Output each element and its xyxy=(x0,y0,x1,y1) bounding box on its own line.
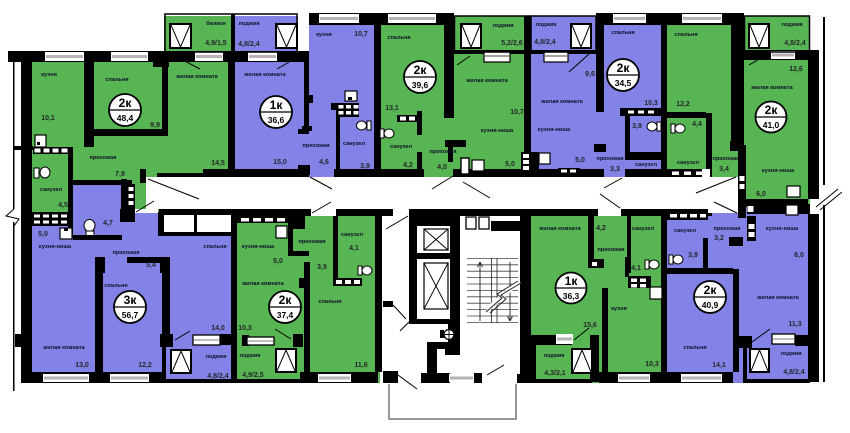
svg-text:жилая комната: жилая комната xyxy=(756,295,799,301)
svg-text:14,1: 14,1 xyxy=(712,362,726,369)
svg-text:13,0: 13,0 xyxy=(75,362,89,369)
svg-text:36,6: 36,6 xyxy=(268,115,285,125)
svg-text:спальня: спальня xyxy=(683,345,706,351)
svg-text:жилая комната: жилая комната xyxy=(241,281,284,287)
svg-text:спальня: спальня xyxy=(387,35,410,41)
svg-text:прихожая: прихожая xyxy=(299,239,326,245)
svg-text:6,0: 6,0 xyxy=(756,191,766,198)
svg-text:лоджия: лоджия xyxy=(543,353,564,359)
svg-text:лоджия: лоджия xyxy=(238,21,259,27)
svg-text:балкон: балкон xyxy=(206,20,226,27)
svg-text:1к: 1к xyxy=(270,98,284,112)
svg-text:40,9: 40,9 xyxy=(702,300,719,310)
svg-text:3к: 3к xyxy=(124,293,138,307)
svg-text:спальня: спальня xyxy=(104,283,127,289)
svg-text:4,4: 4,4 xyxy=(692,121,702,128)
svg-text:кухня: кухня xyxy=(316,32,332,38)
svg-text:кухня: кухня xyxy=(611,306,627,312)
svg-text:56,7: 56,7 xyxy=(122,310,139,320)
svg-text:4,0: 4,0 xyxy=(437,164,447,171)
svg-text:5,2/2,6: 5,2/2,6 xyxy=(501,40,523,47)
svg-text:прихожая: прихожая xyxy=(713,156,740,162)
svg-text:лоджия: лоджия xyxy=(492,23,513,29)
svg-text:кухня-ниша: кухня-ниша xyxy=(762,168,795,174)
svg-text:9,6: 9,6 xyxy=(585,71,595,78)
svg-text:4,8/2,4: 4,8/2,4 xyxy=(784,40,806,47)
svg-text:2к: 2к xyxy=(704,283,718,297)
svg-text:4,5: 4,5 xyxy=(58,202,68,209)
svg-text:спальня: спальня xyxy=(105,77,128,83)
svg-text:5,0: 5,0 xyxy=(38,231,48,238)
svg-text:кухня-ниша: кухня-ниша xyxy=(481,128,514,134)
svg-text:15,6: 15,6 xyxy=(583,322,597,329)
svg-text:4,8/2,4: 4,8/2,4 xyxy=(783,369,805,376)
svg-text:15,0: 15,0 xyxy=(273,159,287,166)
svg-text:10,1: 10,1 xyxy=(41,115,55,122)
svg-text:спальня: спальня xyxy=(203,244,226,250)
svg-text:спальня: спальня xyxy=(674,32,697,38)
svg-text:6,0: 6,0 xyxy=(794,252,804,259)
svg-text:жилая комната: жилая комната xyxy=(175,74,218,80)
svg-text:10,3: 10,3 xyxy=(238,325,252,332)
svg-text:7,9: 7,9 xyxy=(115,171,125,178)
svg-text:санузел: санузел xyxy=(635,162,658,168)
svg-text:34,5: 34,5 xyxy=(615,78,632,88)
svg-text:4,7: 4,7 xyxy=(103,220,113,227)
svg-text:11,3: 11,3 xyxy=(788,321,801,328)
svg-text:2к: 2к xyxy=(119,96,133,110)
svg-text:4,3/2,1: 4,3/2,1 xyxy=(544,370,566,377)
svg-text:прихожая: прихожая xyxy=(90,155,117,161)
svg-text:3,9: 3,9 xyxy=(317,264,327,271)
svg-text:прихожая: прихожая xyxy=(113,250,140,256)
svg-text:2к: 2к xyxy=(414,63,428,77)
svg-text:14,0: 14,0 xyxy=(211,325,225,332)
svg-text:лоджия: лоджия xyxy=(535,22,556,28)
svg-text:3,4: 3,4 xyxy=(719,166,729,173)
svg-text:3,3: 3,3 xyxy=(610,166,620,173)
svg-text:12,2: 12,2 xyxy=(138,362,152,369)
svg-text:11,6: 11,6 xyxy=(354,362,367,369)
svg-text:4,2: 4,2 xyxy=(596,225,606,232)
svg-text:жилая комната: жилая комната xyxy=(538,226,581,232)
svg-text:жилая комната: жилая комната xyxy=(465,78,508,84)
svg-text:4,6: 4,6 xyxy=(319,159,329,166)
svg-text:санузел: санузел xyxy=(343,141,366,147)
svg-text:2к: 2к xyxy=(617,61,631,75)
svg-text:4,8/2,4: 4,8/2,4 xyxy=(534,39,556,46)
svg-text:37,4: 37,4 xyxy=(277,310,294,320)
svg-text:жилая комната: жилая комната xyxy=(540,99,583,105)
svg-text:3,9: 3,9 xyxy=(632,123,642,130)
svg-text:12,2: 12,2 xyxy=(676,101,690,108)
svg-text:прихожая: прихожая xyxy=(430,149,457,155)
svg-text:прихожая: прихожая xyxy=(714,226,741,232)
svg-text:лоджия: лоджия xyxy=(781,22,802,28)
svg-text:кухня-ниша: кухня-ниша xyxy=(242,244,275,250)
svg-text:4,1: 4,1 xyxy=(631,265,641,272)
svg-text:жилая комната: жилая комната xyxy=(42,345,85,351)
svg-text:5,0: 5,0 xyxy=(273,258,283,265)
svg-text:спальня: спальня xyxy=(318,299,341,305)
svg-text:4,2: 4,2 xyxy=(403,162,413,169)
svg-text:5,0: 5,0 xyxy=(575,157,585,164)
svg-text:прихожая: прихожая xyxy=(598,247,625,253)
svg-text:4,8/2,4: 4,8/2,4 xyxy=(207,373,229,380)
svg-text:5,0: 5,0 xyxy=(505,161,515,168)
svg-text:жилая комната: жилая комната xyxy=(750,85,793,91)
svg-text:кухня: кухня xyxy=(41,72,57,78)
svg-text:9,9: 9,9 xyxy=(150,122,160,129)
svg-text:лоджия: лоджия xyxy=(239,353,260,359)
svg-text:48,4: 48,4 xyxy=(117,113,134,123)
svg-text:2к: 2к xyxy=(765,103,779,117)
svg-text:14,5: 14,5 xyxy=(211,160,225,167)
svg-text:жилая комната: жилая комната xyxy=(243,72,286,78)
svg-text:2к: 2к xyxy=(279,293,293,307)
svg-text:санузел: санузел xyxy=(632,226,655,232)
svg-text:4,1: 4,1 xyxy=(349,245,359,252)
svg-text:санузел: санузел xyxy=(390,144,413,150)
svg-text:4,9/2,5: 4,9/2,5 xyxy=(242,372,264,379)
svg-text:3,9: 3,9 xyxy=(688,252,698,259)
svg-text:4,8/2,4: 4,8/2,4 xyxy=(238,41,260,48)
svg-text:кухня-ниша: кухня-ниша xyxy=(766,226,799,232)
svg-text:39,6: 39,6 xyxy=(412,80,429,90)
svg-text:13,1: 13,1 xyxy=(385,105,399,112)
svg-text:10,3: 10,3 xyxy=(645,361,659,368)
svg-text:3,2: 3,2 xyxy=(714,235,724,242)
svg-text:12,6: 12,6 xyxy=(789,66,803,73)
svg-text:прихожая: прихожая xyxy=(597,156,624,162)
svg-text:3,9: 3,9 xyxy=(360,163,370,170)
svg-text:лоджия: лоджия xyxy=(205,354,226,360)
svg-text:санузел: санузел xyxy=(677,160,700,166)
svg-text:кухня-ниша: кухня-ниша xyxy=(538,127,571,133)
svg-text:1к: 1к xyxy=(565,274,579,288)
svg-text:кухня-ниша: кухня-ниша xyxy=(39,244,72,250)
svg-text:10,3: 10,3 xyxy=(644,100,658,107)
svg-text:прихожая: прихожая xyxy=(303,143,330,149)
svg-text:4,9/1,5: 4,9/1,5 xyxy=(205,40,227,47)
svg-text:санузел: санузел xyxy=(674,228,697,234)
svg-text:10,7: 10,7 xyxy=(354,31,368,38)
svg-text:лоджия: лоджия xyxy=(780,351,801,357)
svg-text:5,4: 5,4 xyxy=(146,262,156,269)
svg-text:санузел: санузел xyxy=(341,232,364,238)
svg-text:36,3: 36,3 xyxy=(563,291,580,301)
svg-text:10,7: 10,7 xyxy=(510,109,524,116)
svg-text:спальня: спальня xyxy=(611,30,634,36)
svg-text:санузел: санузел xyxy=(40,187,63,193)
svg-text:41,0: 41,0 xyxy=(763,120,780,130)
